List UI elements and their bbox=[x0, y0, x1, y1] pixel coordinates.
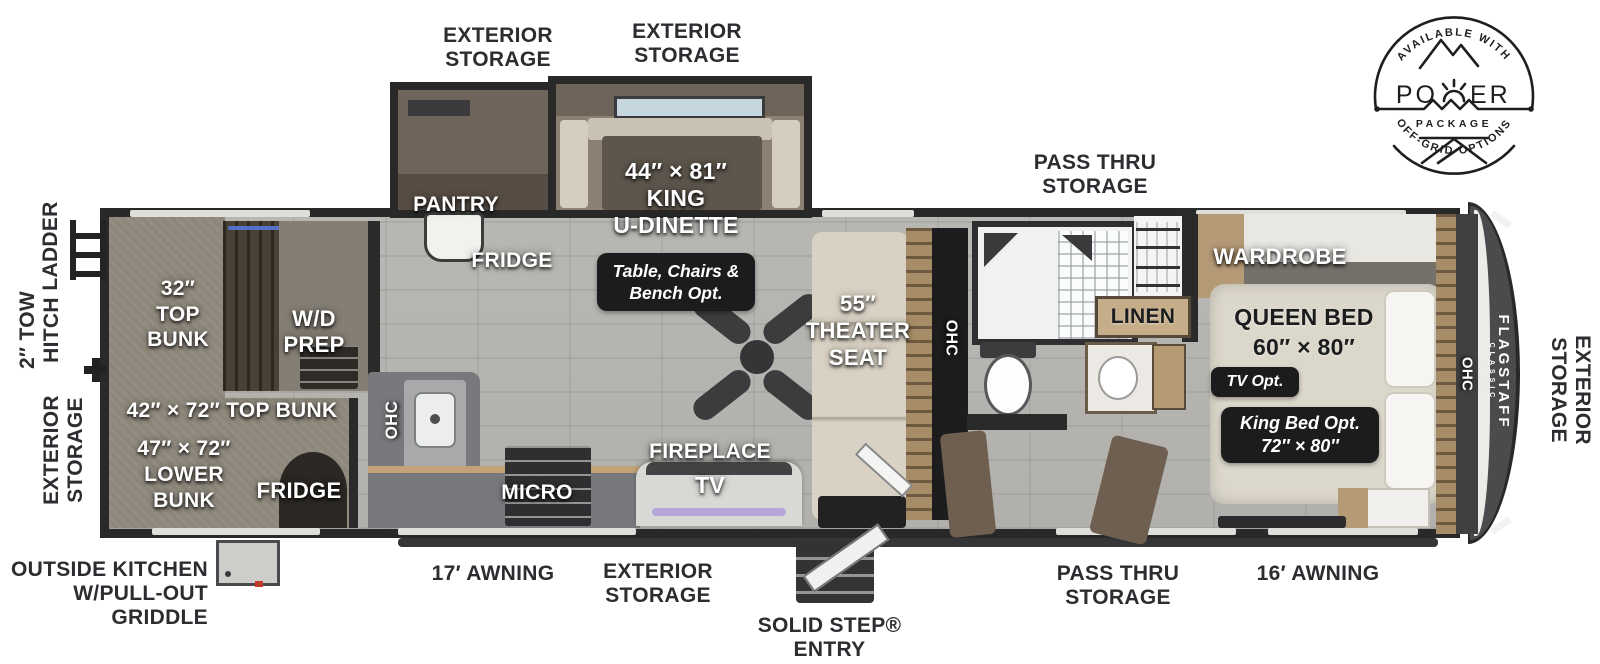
entry-landing bbox=[818, 496, 906, 528]
label-micro: MICRO bbox=[478, 481, 596, 505]
closet-rails bbox=[1134, 216, 1182, 298]
brand-series: CLASSIC bbox=[1488, 277, 1495, 467]
window-bottom-bedroom bbox=[1268, 528, 1418, 535]
bath-wall-lower bbox=[967, 414, 1067, 430]
label-exterior-storage-left: EXTERIOR STORAGE bbox=[40, 395, 88, 505]
dinette-bench-right bbox=[772, 120, 800, 208]
tow-hitch-icon-post bbox=[92, 358, 100, 382]
label-theater-seat: 55″ THEATER SEAT bbox=[798, 291, 918, 371]
label-exterior-storage-bottom: EXTERIOR STORAGE bbox=[588, 560, 728, 608]
label-awning-17: 17′ AWNING bbox=[408, 562, 578, 586]
linen-cabinet: LINEN bbox=[1095, 296, 1191, 338]
dinette-option-badge: Table, Chairs & Bench Opt. bbox=[597, 253, 755, 311]
label-ohc-living: OHC bbox=[941, 320, 960, 356]
label-top-bunk-42: 42″ × 72″ TOP BUNK bbox=[110, 399, 354, 423]
bunk-wall-upper bbox=[368, 221, 380, 393]
label-pass-thru-top: PASS THRU STORAGE bbox=[1015, 151, 1175, 199]
mountains-icon bbox=[1420, 40, 1478, 68]
pillow-bottom bbox=[1384, 392, 1436, 490]
ladder-icon bbox=[70, 220, 106, 280]
vanity-door-open bbox=[1152, 344, 1186, 410]
awning-bar bbox=[398, 538, 1438, 547]
label-lower-bunk-47: 47″ × 72″ LOWER BUNK bbox=[118, 436, 250, 514]
kitchen-faucet bbox=[430, 414, 440, 424]
tv-option-badge: TV Opt. bbox=[1211, 367, 1299, 397]
badge-arc-top-text: AVAILABLE WITH bbox=[1395, 27, 1513, 64]
label-fridge-kitchen: FRIDGE bbox=[452, 249, 572, 273]
label-wardrobe: WARDROBE bbox=[1194, 244, 1366, 270]
window-bottom-rear bbox=[152, 528, 320, 535]
label-king-dinette: 44″ × 81″ KING U-DINETTE bbox=[586, 158, 766, 239]
toilet bbox=[984, 354, 1032, 416]
vanity-sink bbox=[1098, 356, 1138, 400]
brand-name: FLAGSTAFF bbox=[1495, 277, 1512, 467]
window-top-mid bbox=[822, 210, 914, 217]
pantry-skylight bbox=[408, 100, 470, 116]
label-solid-step-entry: SOLID STEP® ENTRY bbox=[752, 614, 907, 662]
king-option-badge: King Bed Opt. 72″ × 80″ bbox=[1221, 407, 1379, 463]
label-ohc-kitchen: OHC bbox=[382, 401, 402, 440]
label-pass-thru-bottom: PASS THRU STORAGE bbox=[1038, 562, 1198, 610]
outside-kitchen-griddle-box bbox=[216, 540, 280, 586]
label-outside-kitchen: OUTSIDE KITCHEN W/PULL-OUT GRIDDLE bbox=[0, 558, 208, 630]
window-bottom-kitchen bbox=[398, 528, 636, 535]
floorplan: AVAILABLE WITH OFF-GRID OPTIONS PO ER PA… bbox=[0, 0, 1600, 664]
label-pantry: PANTRY bbox=[390, 193, 522, 217]
kitchen-counter-wood-edge bbox=[368, 466, 640, 473]
label-queen-bed: QUEEN BED 60″ × 80″ bbox=[1213, 303, 1395, 363]
label-fridge-bunk: FRIDGE bbox=[243, 478, 355, 504]
label-exterior-storage-top-2: EXTERIOR STORAGE bbox=[607, 20, 767, 68]
badge-word-left: PO bbox=[1396, 81, 1438, 109]
label-awning-16: 16′ AWNING bbox=[1238, 562, 1398, 586]
power-package-badge: AVAILABLE WITH OFF-GRID OPTIONS PO ER PA… bbox=[1364, 6, 1544, 186]
label-tow-hitch: 2″ TOW HITCH bbox=[16, 291, 64, 369]
bed-side-wardrobe bbox=[1436, 214, 1456, 534]
label-top-bunk-32: 32″ TOP BUNK bbox=[122, 276, 234, 353]
tv-glow-strip bbox=[652, 508, 786, 516]
label-tv: TV bbox=[678, 472, 742, 499]
svg-text:AVAILABLE WITH: AVAILABLE WITH bbox=[1395, 27, 1513, 64]
label-exterior-storage-right: EXTERIOR STORAGE bbox=[1546, 335, 1594, 445]
window-top-rear bbox=[130, 210, 310, 217]
badge-package-text: PACKAGE bbox=[1416, 118, 1492, 130]
label-wd-prep: W/D PREP bbox=[272, 306, 356, 357]
sun-icon bbox=[1443, 80, 1465, 101]
badge-word-right: ER bbox=[1470, 81, 1511, 109]
dinette-skylight bbox=[614, 96, 765, 119]
label-ladder: LADDER bbox=[39, 201, 63, 290]
living-ohc-cabinet bbox=[906, 228, 932, 520]
label-exterior-storage-top-1: EXTERIOR STORAGE bbox=[418, 24, 578, 72]
brand-mark: FLAGSTAFF CLASSIC bbox=[1488, 277, 1512, 467]
label-ohc-bedroom: OHC bbox=[1458, 357, 1475, 391]
bedroom-floor-tv bbox=[1218, 516, 1346, 528]
dinette-bench-left bbox=[560, 120, 588, 208]
label-fireplace: FIREPLACE bbox=[628, 440, 792, 464]
linen-label: LINEN bbox=[1111, 304, 1176, 329]
